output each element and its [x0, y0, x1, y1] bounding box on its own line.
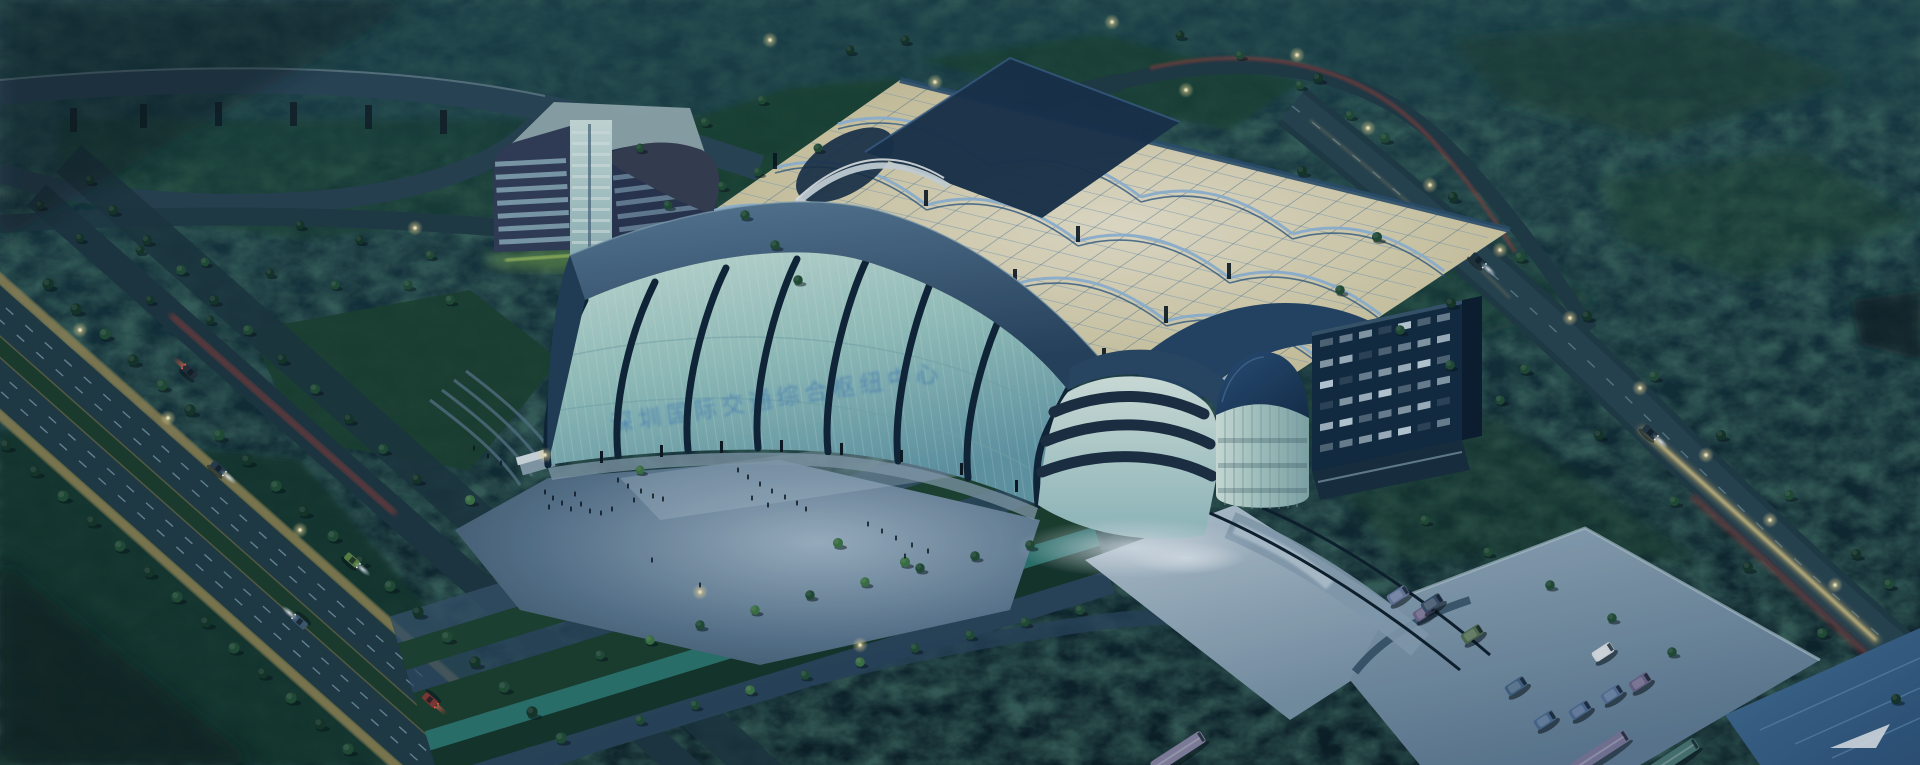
vignette — [0, 0, 1920, 765]
night-aerial-rendering: 深圳国际交通综合枢纽中心 — [0, 0, 1920, 765]
scene-svg: 深圳国际交通综合枢纽中心 — [0, 0, 1920, 765]
